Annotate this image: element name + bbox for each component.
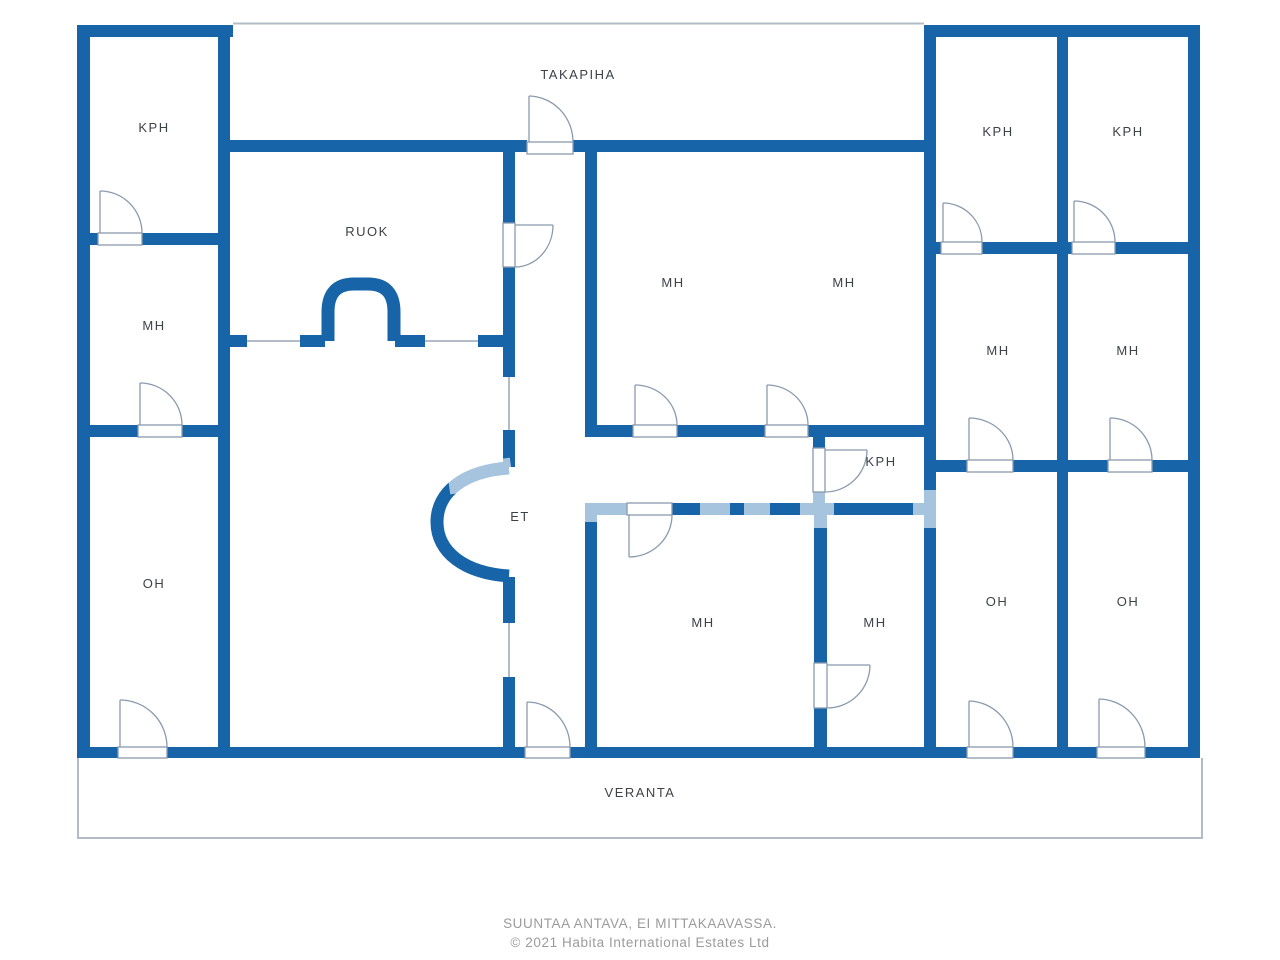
- door-kph-right-2: [1072, 201, 1115, 254]
- room-label-kph-right-1: KPH: [982, 124, 1013, 139]
- footer-copyright: © 2021 Habita International Estates Ltd: [0, 933, 1280, 952]
- walls: [77, 25, 1200, 758]
- area-label-takapiha: TAKAPIHA: [540, 67, 615, 82]
- door-kph-right-1: [941, 203, 982, 254]
- ruok-arch-opening: [328, 284, 394, 341]
- door-kph-left: [98, 191, 142, 245]
- room-label-kph-right-2: KPH: [1112, 124, 1143, 139]
- room-label-oh-right-1: OH: [986, 594, 1009, 609]
- room-label-oh-right-2: OH: [1117, 594, 1140, 609]
- room-label-mh-top-1: MH: [661, 275, 684, 290]
- door-mh-bottom-2: [814, 663, 870, 708]
- door-mh-right-1: [967, 418, 1013, 472]
- room-label-mh-left: MH: [142, 318, 165, 333]
- room-label-mh-top-2: MH: [832, 275, 855, 290]
- room-label-mh-bottom-2: MH: [863, 615, 886, 630]
- door-et-front: [525, 702, 570, 758]
- room-label-mh-right-1: MH: [986, 343, 1009, 358]
- room-label-ruok: RUOK: [345, 224, 389, 239]
- room-label-et: ET: [510, 509, 530, 524]
- door-oh-right-1: [967, 701, 1013, 758]
- door-mh-left: [138, 383, 182, 437]
- footer-disclaimer: SUUNTAA ANTAVA, EI MITTAKAAVASSA.: [0, 914, 1280, 933]
- area-label-veranta: VERANTA: [605, 785, 676, 800]
- room-label-mh-bottom-1: MH: [691, 615, 714, 630]
- door-back-hall: [503, 223, 553, 267]
- door-mh-top-1: [633, 385, 677, 437]
- door-mh-top-2: [765, 385, 808, 437]
- footer: SUUNTAA ANTAVA, EI MITTAKAAVASSA. © 2021…: [0, 914, 1280, 952]
- room-label-kph-small: KPH: [865, 454, 896, 469]
- door-oh-right-2: [1097, 699, 1145, 758]
- room-label-kph-left: KPH: [138, 120, 169, 135]
- door-kph-small: [813, 448, 867, 492]
- door-mh-bottom-1: [627, 503, 672, 557]
- door-oh-left: [118, 700, 167, 758]
- room-label-mh-right-2: MH: [1116, 343, 1139, 358]
- door-mh-right-2: [1108, 418, 1152, 472]
- floor-plan-page: KPH MH OH TAKAPIHA RUOK MH MH KPH KPH MH…: [0, 0, 1280, 960]
- arched-walls: [328, 284, 509, 576]
- room-label-oh-left: OH: [143, 576, 166, 591]
- door-takapiha: [527, 96, 573, 154]
- floor-plan-svg: KPH MH OH TAKAPIHA RUOK MH MH KPH KPH MH…: [0, 0, 1280, 960]
